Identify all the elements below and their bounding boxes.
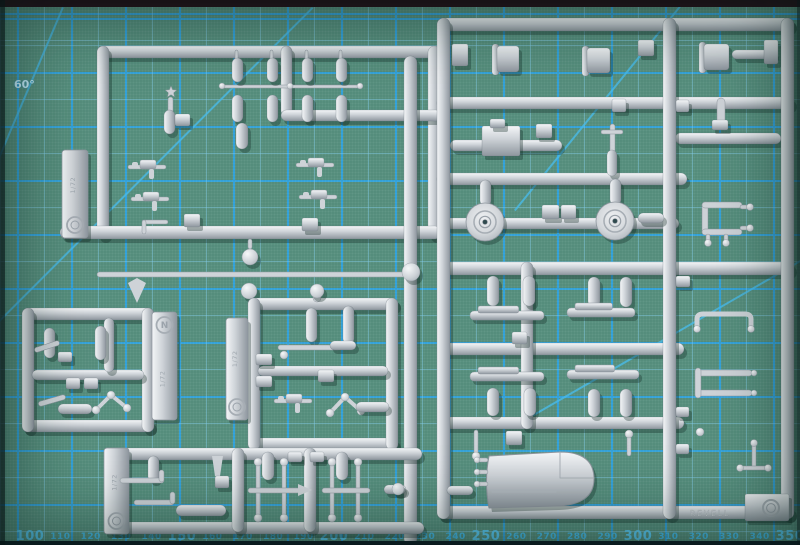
pin-head-part — [474, 481, 480, 487]
bomb-part — [336, 58, 347, 82]
maker-logo — [229, 399, 245, 415]
sprue-runner — [437, 18, 794, 31]
sprue-runner — [404, 56, 417, 545]
fuel-drum-part — [306, 308, 317, 342]
photo-left-edge — [0, 0, 5, 545]
small-block-part — [288, 452, 302, 462]
sprue-runner — [232, 448, 244, 532]
bent-rod-part — [170, 492, 175, 504]
wing-panel-part-step — [575, 365, 615, 372]
machine-gun-part-sight — [132, 162, 138, 168]
bulkhead-part — [452, 44, 468, 66]
wheel-axle-hole — [483, 220, 487, 224]
bomb-part — [267, 95, 278, 122]
fuel-drum-part — [236, 123, 248, 149]
sprue-b-bottom-left: N1/72 — [22, 308, 180, 436]
sprue-runner — [97, 46, 442, 58]
sprue-runner — [22, 308, 34, 432]
pin-head-part — [474, 469, 480, 475]
bomb-part — [588, 277, 600, 307]
sprue-c-bottom-middle: 1/72 — [226, 284, 401, 454]
sprue-runner — [97, 46, 109, 239]
scale-marking: 1/72 — [69, 177, 77, 194]
maker-logo — [67, 217, 83, 233]
machine-gun-part-sight — [278, 396, 284, 402]
cross-bar-part — [248, 488, 300, 493]
strut-end-part — [737, 465, 744, 472]
exhaust-stack-part — [95, 326, 106, 360]
bomb-part — [620, 389, 632, 417]
ball-joint-part — [326, 409, 334, 417]
wing-panel-part-step — [478, 306, 519, 313]
gate-part — [248, 239, 252, 249]
small-block-part — [318, 370, 334, 382]
pilot-seat-part — [704, 44, 729, 70]
machine-gun-part-body — [311, 190, 327, 199]
tailpipe-part — [356, 402, 389, 412]
ball-joint-part — [123, 404, 131, 412]
hex-knob-part — [392, 483, 404, 495]
bomb-part — [523, 276, 535, 306]
sprue-runner — [437, 262, 794, 275]
seat-back-part — [184, 214, 200, 227]
pilot-seat-part — [587, 48, 610, 73]
gun-mount-part — [695, 368, 701, 398]
plastic-sprues: 1/72N1/721/721/72REVELL — [0, 0, 800, 545]
small-block-part — [764, 40, 778, 64]
pitot-part — [474, 430, 478, 454]
bent-rod-part — [159, 470, 164, 482]
rod-joint-part — [357, 83, 363, 89]
sprue-runner — [108, 522, 424, 534]
bomb-part — [487, 388, 499, 416]
machine-gun-part-grip — [152, 201, 157, 211]
machine-gun-part-body — [308, 158, 324, 167]
bent-rod-part — [120, 478, 164, 483]
engine-mount-part — [702, 202, 742, 208]
rod-joint-part — [219, 83, 225, 89]
ball-joint-part — [92, 406, 100, 414]
strut-end-part — [254, 514, 262, 522]
cone-part-part — [212, 456, 223, 476]
bent-rod-part — [134, 500, 174, 505]
pin-part — [627, 436, 631, 456]
pin-head-part — [474, 457, 480, 463]
gun-barrel-part — [698, 390, 752, 396]
small-block-part — [506, 431, 522, 445]
bomb-part — [336, 95, 347, 122]
strut-end-part — [354, 458, 362, 466]
small-block-part — [676, 100, 689, 112]
towbar-end-part — [694, 326, 701, 333]
ball-joint-part — [341, 393, 349, 401]
strut-end-part — [765, 465, 772, 472]
lever-part — [142, 220, 146, 234]
ball-joint-part — [280, 351, 288, 359]
photo-bottom-edge — [0, 541, 800, 545]
pilot-seat-part — [497, 46, 519, 72]
small-block-part — [542, 205, 559, 219]
machine-gun-part-grip — [295, 403, 300, 413]
sprue-runner — [437, 173, 687, 185]
small-block-part — [215, 476, 229, 488]
center-runner — [402, 56, 423, 545]
machine-gun-part-sight — [300, 160, 306, 166]
strut-end-part — [751, 440, 758, 447]
sprue-runner — [60, 226, 441, 239]
sprue-runner — [437, 18, 450, 519]
fuel-drum-part — [343, 306, 354, 344]
stub-part — [638, 213, 664, 223]
sprue-runner — [22, 308, 154, 320]
gear-leg-part — [610, 179, 621, 205]
engine-cowling-part — [487, 452, 595, 508]
wheel-axle-hole — [613, 219, 617, 223]
scale-marking: 1/72 — [111, 474, 119, 491]
mount-lug-part — [747, 225, 754, 232]
mast-body-part — [164, 110, 175, 134]
cross-bar-part — [322, 488, 370, 493]
bomb-part — [302, 95, 313, 122]
small-block-part — [302, 218, 318, 231]
bomb-part — [588, 389, 600, 417]
drop-tank-part — [176, 505, 226, 516]
sprue-runner — [437, 343, 684, 355]
sprue-disc-part — [241, 283, 257, 299]
machine-gun-part-body — [140, 160, 156, 169]
sprue-knob-part — [310, 284, 324, 298]
mast-bracket-part — [175, 114, 190, 126]
tailpipe-part — [58, 404, 92, 414]
photo-top-edge — [0, 0, 800, 7]
sprue-runner — [281, 46, 292, 116]
scale-marking: 1/72 — [231, 350, 239, 367]
sprue-runner — [675, 133, 781, 144]
small-block-part — [676, 276, 690, 287]
small-block-part — [561, 205, 576, 219]
strut-end-part — [328, 514, 336, 522]
bomb-part — [487, 276, 499, 306]
star-finial-part — [165, 86, 176, 97]
sprue-a-top-left: 1/72 — [60, 46, 445, 303]
gear-leg-part — [480, 180, 491, 206]
strut-end-part — [280, 514, 288, 522]
brand-embossed-part: REVELL — [690, 509, 730, 518]
small-block-part — [84, 378, 98, 389]
small-block-part — [66, 378, 80, 389]
bomb-part — [232, 95, 243, 122]
cowl-intake-lip-part — [490, 119, 505, 128]
gun-barrel-part — [698, 370, 752, 376]
small-block-part — [676, 444, 689, 454]
towbar-end-part — [748, 326, 755, 333]
gun-body-part — [330, 341, 356, 350]
small-block-part — [310, 452, 324, 462]
photo-model-kit-sprues-on-cutting-mat: 60° 100110120130140150160170180190200210… — [0, 0, 800, 545]
strut-end-part — [254, 458, 262, 466]
wing-panel-part-step — [478, 367, 519, 374]
bomb-part — [302, 58, 313, 82]
bomb-part — [524, 388, 536, 416]
sprue-runner — [663, 18, 676, 519]
sprue-runner — [781, 18, 794, 519]
sprue-e-right: REVELL — [437, 18, 797, 525]
small-block-part — [712, 120, 728, 130]
small-block-part — [58, 352, 72, 362]
rod-joint-part — [287, 83, 293, 89]
sprue-letter: N — [161, 321, 169, 331]
scale-marking: 1/72 — [159, 371, 167, 388]
small-block-part — [512, 332, 527, 344]
ball-joint-part — [107, 391, 115, 399]
machine-gun-part-body — [143, 192, 159, 201]
fin-part-part — [128, 278, 146, 303]
bomb-part — [232, 58, 243, 82]
machine-gun-part-grip — [317, 167, 322, 177]
strut-end-part — [354, 514, 362, 522]
machine-gun-part-grip — [320, 199, 325, 209]
small-block-part — [612, 99, 626, 112]
mount-lug-part — [705, 240, 712, 247]
control-column-base-part — [607, 150, 617, 176]
maker-logo-part — [763, 500, 779, 516]
wing-panel-part-step — [575, 303, 612, 310]
bomb-part — [620, 277, 632, 307]
small-block-part — [256, 376, 272, 387]
knob-part — [696, 428, 704, 436]
small-block-part — [536, 124, 552, 138]
muzzle-part — [751, 390, 757, 396]
sprue-disc-part — [402, 263, 420, 281]
oleo-leg-part — [262, 452, 274, 480]
maker-logo — [109, 513, 125, 529]
mount-lug-part — [747, 204, 754, 211]
bomb-part — [267, 58, 278, 82]
sprue-runner — [437, 417, 684, 429]
stub-part — [447, 486, 473, 495]
strut-end-part — [280, 458, 288, 466]
pin-head-part — [625, 430, 633, 438]
control-column-bar-part — [601, 130, 623, 134]
oleo-leg-part — [336, 452, 348, 480]
strut-end-part — [328, 458, 336, 466]
sprue-runner — [22, 420, 154, 432]
small-block-part — [676, 407, 689, 417]
mount-lug-part — [723, 240, 730, 247]
machine-gun-part-sight — [303, 192, 309, 198]
machine-gun-part-grip — [149, 169, 154, 179]
machine-gun-part-sight — [135, 194, 141, 200]
small-block-part — [256, 354, 272, 365]
control-column-part — [610, 124, 615, 154]
towbar-part — [697, 314, 751, 327]
small-block-part — [638, 40, 654, 56]
muzzle-part — [751, 370, 757, 376]
sprue-disc-part — [242, 249, 258, 265]
long-spar-rod-part — [97, 272, 413, 277]
machine-gun-part-body — [286, 394, 302, 403]
sprue-d-bottom-strip: 1/72 — [104, 448, 427, 538]
